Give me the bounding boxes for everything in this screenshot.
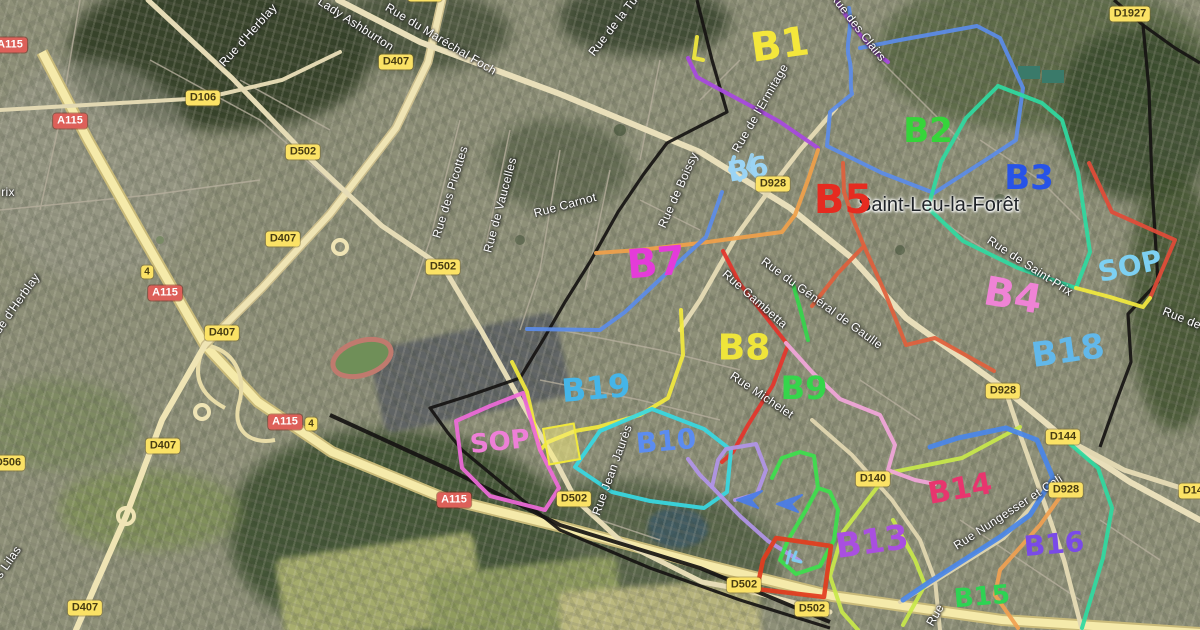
road-badge-d144: D144 (1179, 484, 1200, 499)
routes-layer (0, 0, 1200, 630)
arrow-blue-1 (737, 491, 762, 508)
road-badge-a115: A115 (148, 286, 182, 301)
route-chartreuse-a (830, 427, 1020, 630)
road-badge-d407: D407 (379, 55, 413, 70)
route-sop-red (1089, 163, 1175, 298)
route-salmon (843, 163, 994, 371)
road-badge-d407: D407 (266, 232, 300, 247)
road-badge-d106: D106 (186, 91, 220, 106)
road-badge-d407: D407 (68, 601, 102, 616)
road-badge-a115: A115 (268, 415, 302, 430)
road-badge-d928: D928 (756, 177, 790, 192)
route-teal-lower (1062, 437, 1112, 628)
route-purple-ermitage (688, 58, 818, 148)
mark-cyan-scribble (787, 551, 801, 563)
road-badge-d502: D502 (727, 578, 761, 593)
route-green-b9 (793, 284, 808, 340)
arrow-blue-2 (777, 495, 802, 512)
road-badge-4: 4 (141, 266, 153, 279)
route-cyan-b10 (575, 409, 731, 508)
route-red-gambetta (722, 251, 788, 462)
road-badge-d502: D502 (557, 492, 591, 507)
road-badge-d928: D928 (986, 384, 1020, 399)
road-badge-d407: D407 (205, 326, 239, 341)
road-badge-d506: D506 (0, 456, 25, 471)
road-badge-a115: A115 (53, 114, 87, 129)
route-teal-loop (928, 86, 1090, 288)
road-badge-d407: D407 (146, 439, 180, 454)
route-lavender (688, 459, 800, 561)
road-badge-d502: D502 (795, 602, 829, 617)
road-badge-d407: D407 (408, 0, 442, 2)
yellow-block (542, 422, 581, 465)
satellite-map[interactable]: Saint-Leu-la-Forêt Lady AshburtonRue du … (0, 0, 1200, 630)
route-blue-left (527, 192, 722, 330)
road-badge-d502: D502 (426, 260, 460, 275)
road-badge-a115: A115 (0, 38, 27, 53)
road-badge-a115: A115 (437, 493, 471, 508)
route-chartreuse-b (893, 520, 925, 625)
mark-yellow-hook (694, 37, 703, 60)
route-salmon-branch (812, 246, 864, 306)
mark-b6-squiggle (730, 155, 758, 180)
route-purple-clairs (836, 0, 888, 62)
route-blue-nungesser (903, 428, 1053, 600)
road-badge-d140: D140 (856, 472, 890, 487)
road-badge-d1927: D1927 (1110, 7, 1150, 22)
route-sop-yellow (1076, 288, 1150, 307)
road-badge-d144: D144 (1046, 430, 1080, 445)
road-badge-4: 4 (305, 418, 317, 431)
road-badge-d502: D502 (286, 145, 320, 160)
route-pink-light (786, 343, 935, 484)
road-badge-d928: D928 (1049, 483, 1083, 498)
route-pink-poly (456, 393, 559, 510)
route-b1-blue (827, 8, 1023, 193)
